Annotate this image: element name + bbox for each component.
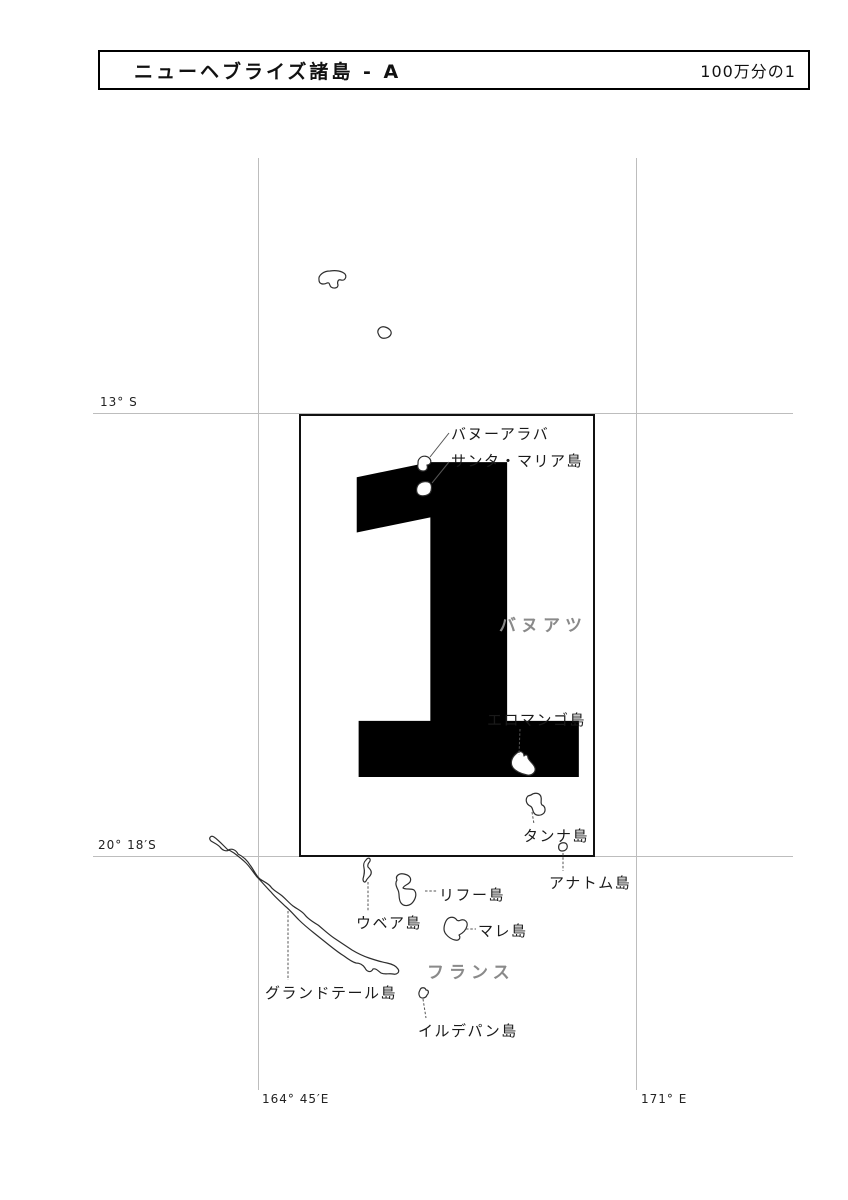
- island-label-anatom: アナトム島: [549, 872, 631, 893]
- longitude-label-171e: 171° E: [641, 1092, 687, 1106]
- island-label-tanna: タンナ島: [523, 825, 589, 846]
- meridian-line-164-45e: [258, 158, 259, 1090]
- meridian-line-171e: [636, 158, 637, 1090]
- island-label-erromango: エロマンゴ島: [487, 709, 586, 730]
- island-label-vanua-lava: バヌーアラバ: [451, 423, 549, 444]
- island-label-lifou: リフー島: [439, 884, 505, 905]
- island-label-santa-maria: サンタ・マリア島: [451, 450, 583, 471]
- region-label-vanuatu: バヌアツ: [499, 611, 587, 636]
- island-label-grande-terre: グランドテール島: [265, 982, 397, 1003]
- map-scale-label: 100万分の1: [700, 58, 796, 82]
- island-unnamed-north-1: [319, 271, 346, 288]
- page-title: ニューヘブライズ諸島 - A: [134, 57, 401, 84]
- latitude-label-20-18s: 20° 18′S: [98, 838, 157, 852]
- island-label-mare: マレ島: [478, 920, 528, 941]
- longitude-label-164-45e: 164° 45′E: [262, 1092, 329, 1106]
- leader-ile-des-pins: [423, 999, 426, 1018]
- island-ile-des-pins: [419, 988, 429, 998]
- island-mare: [444, 917, 467, 940]
- title-box: ニューヘブライズ諸島 - A 100万分の1: [98, 50, 810, 90]
- latitude-label-13s: 13° S: [100, 395, 138, 409]
- island-label-ile-des-pins: イルデパン島: [418, 1020, 518, 1041]
- region-label-france: フランス: [427, 958, 515, 983]
- island-label-ouvea: ウベア島: [356, 912, 422, 933]
- map-index-page: ニューヘブライズ諸島 - A 100万分の1 13° S 20° 18′S 16…: [0, 0, 848, 1200]
- island-unnamed-north-2: [378, 327, 391, 338]
